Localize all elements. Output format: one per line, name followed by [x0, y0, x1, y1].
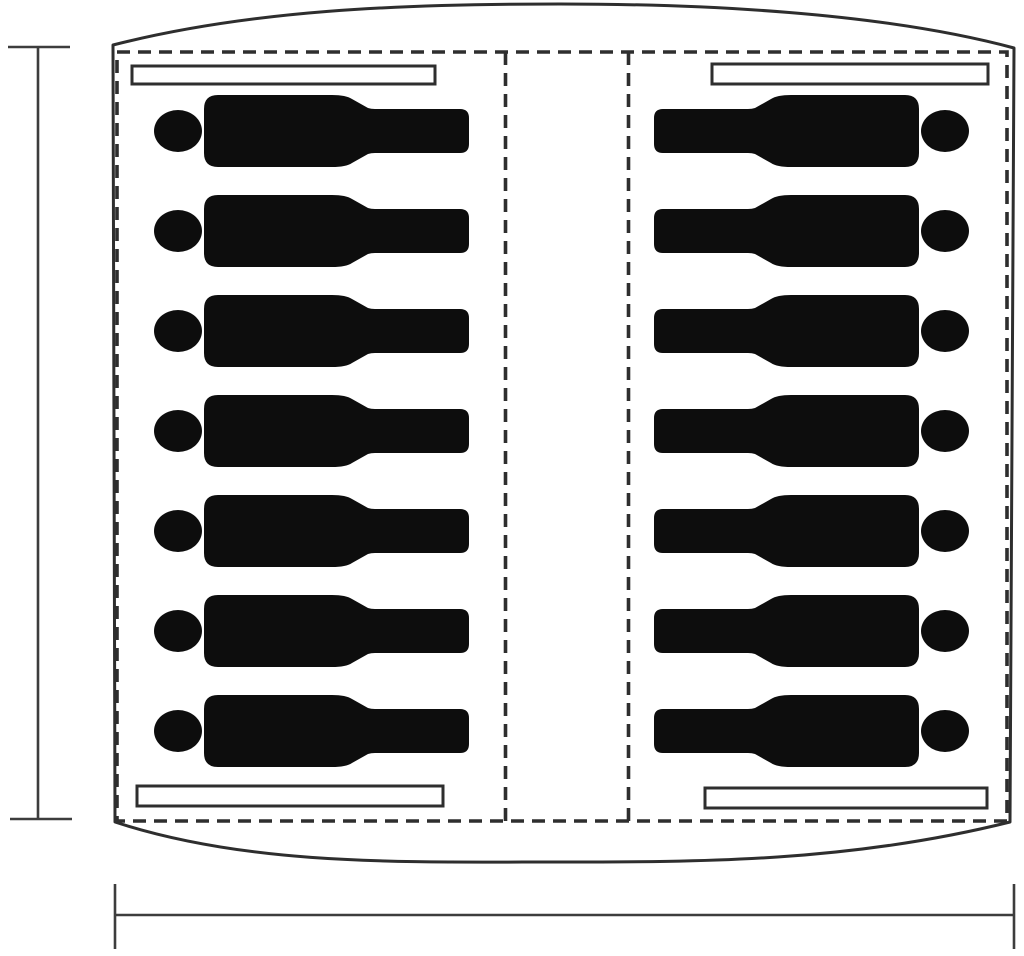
polarizing-bar-top-left — [132, 66, 435, 84]
width-dimension — [115, 884, 1014, 949]
connector-diagram-canvas — [0, 0, 1024, 956]
polarizing-bar-bottom-right — [705, 788, 987, 808]
polarizing-bar-bottom-left — [137, 786, 443, 806]
polarizing-bar-top-right — [712, 64, 988, 84]
connector-pinout-figure — [0, 0, 1024, 956]
height-dimension — [8, 47, 72, 819]
